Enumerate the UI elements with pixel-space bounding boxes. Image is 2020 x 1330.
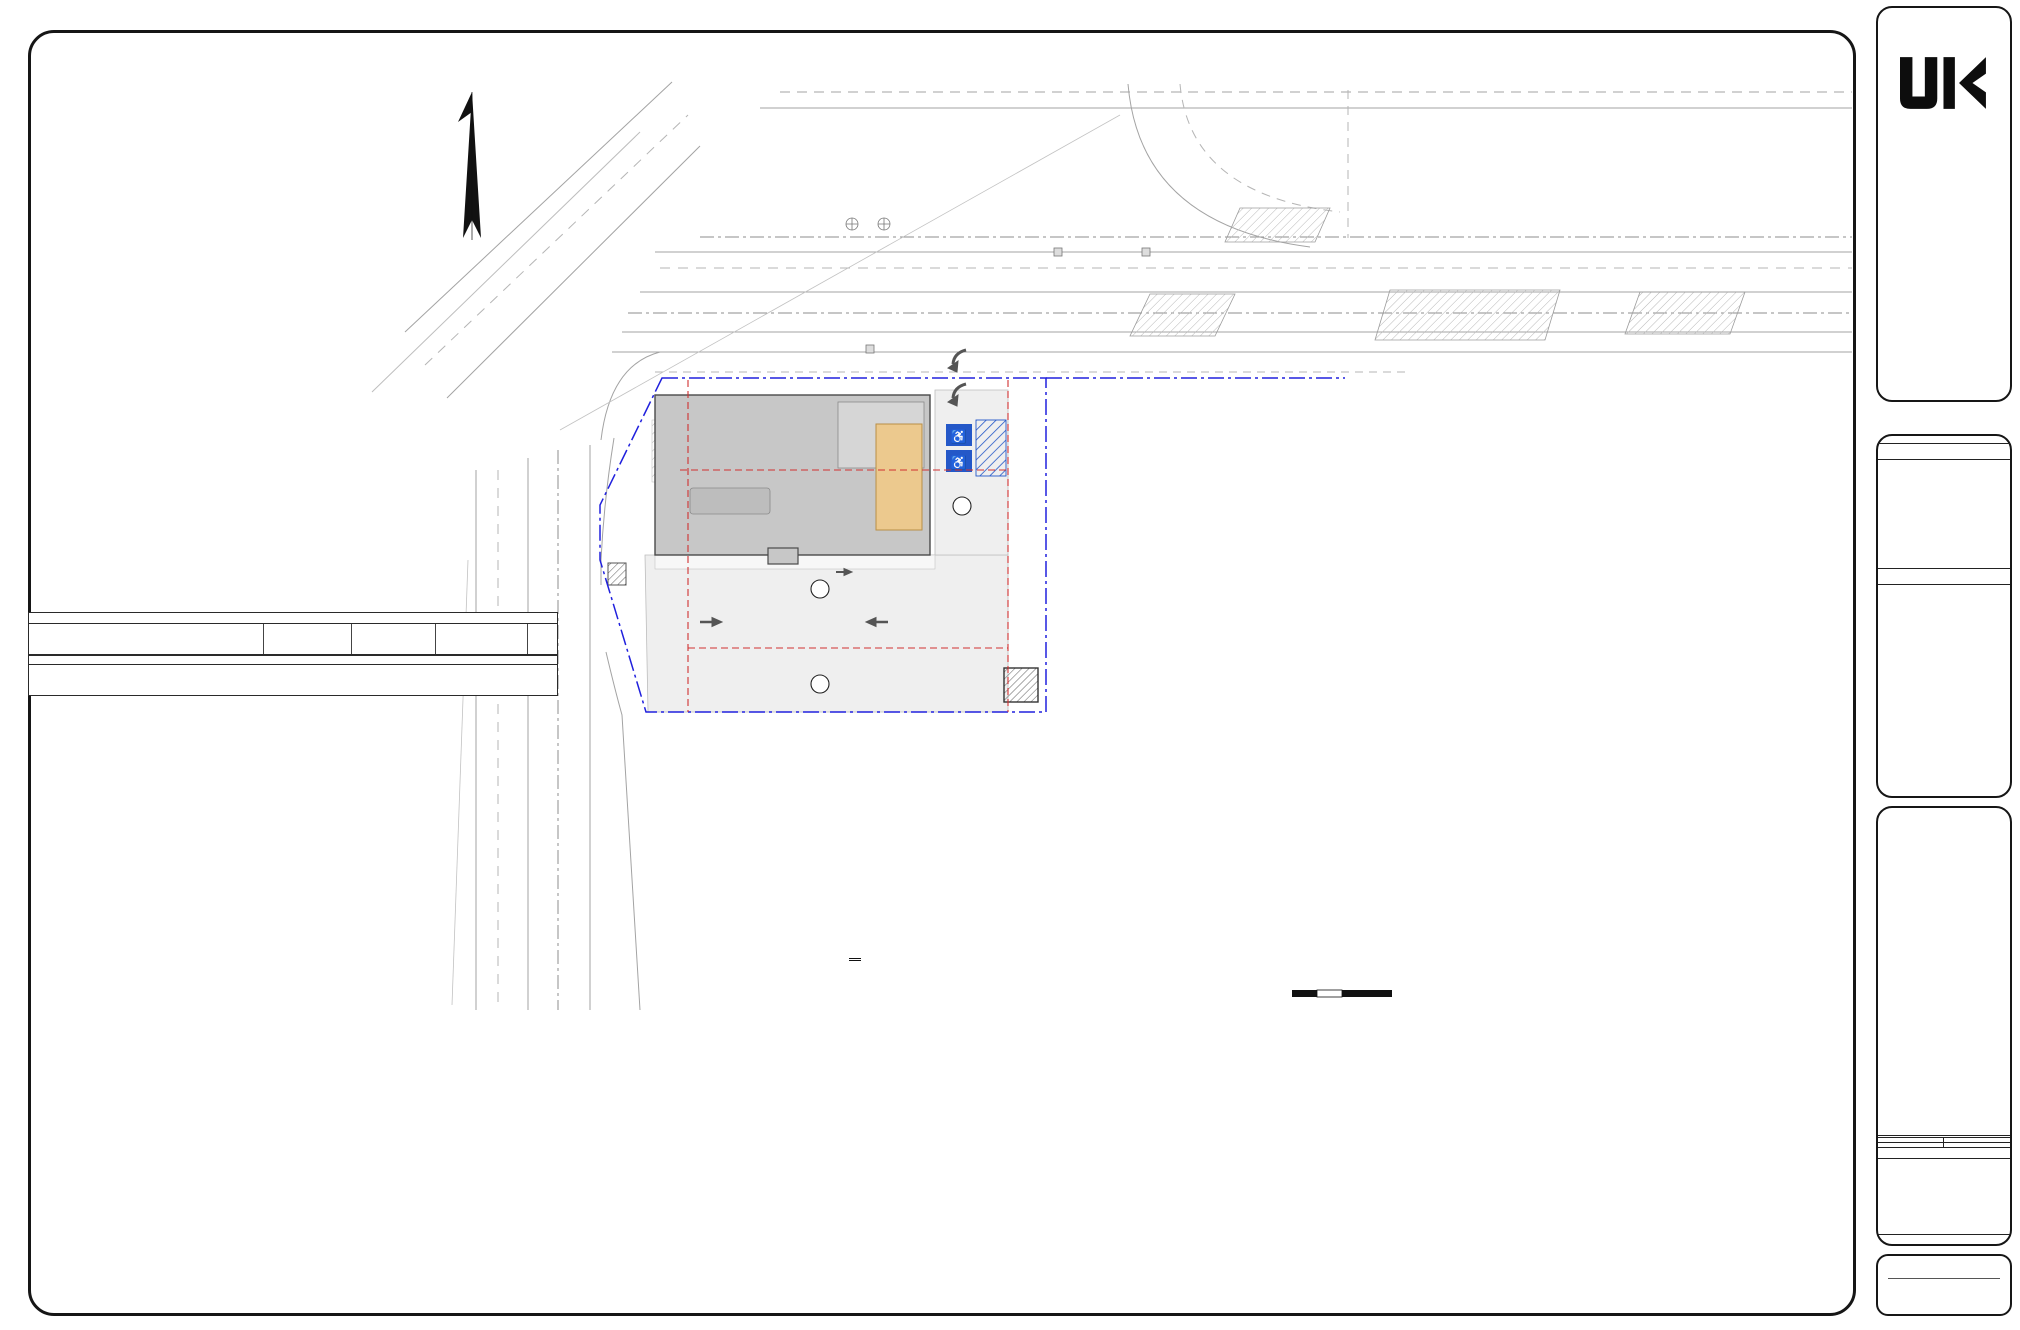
jk-logo-icon [1900, 42, 1988, 124]
engineer-of-record-block [1876, 1254, 2012, 1316]
revision-title [1878, 561, 2010, 568]
graphic-scale-bar [1292, 990, 1392, 997]
driveway-hatches [1130, 208, 1745, 340]
wheelchair-icon: ♿ [951, 429, 967, 444]
revision-header-row [1878, 568, 2010, 585]
zoning-header-row [29, 623, 557, 655]
project-info-block [1876, 806, 2012, 1246]
issue-header-row [1878, 443, 2010, 460]
abbreviations-section [29, 655, 557, 664]
utility-symbols [846, 218, 1150, 353]
outdoor-patio [876, 424, 922, 530]
zoning-schedule-table [28, 612, 558, 696]
wheelchair-icon: ♿ [951, 455, 967, 470]
signature-line [1888, 1278, 2000, 1279]
drawing-title [620, 948, 1090, 969]
initial-date-row [1878, 1234, 2010, 1244]
notes-section [29, 664, 557, 695]
drawing-number-section [1878, 1158, 2010, 1234]
utility-pad [608, 563, 626, 585]
road-linework [372, 82, 1852, 1010]
drawing-title-text [849, 956, 861, 961]
revision-empty-rows [1878, 585, 2010, 705]
firm-logo-block [1876, 6, 2012, 402]
issue-revision-block [1876, 434, 2012, 798]
trash-enclosure [1004, 668, 1038, 702]
drawing-name-section [1878, 1147, 2010, 1158]
issue-title [1878, 436, 2010, 443]
survey-reference-notes [95, 92, 533, 120]
issue-empty-rows [1878, 460, 2010, 561]
